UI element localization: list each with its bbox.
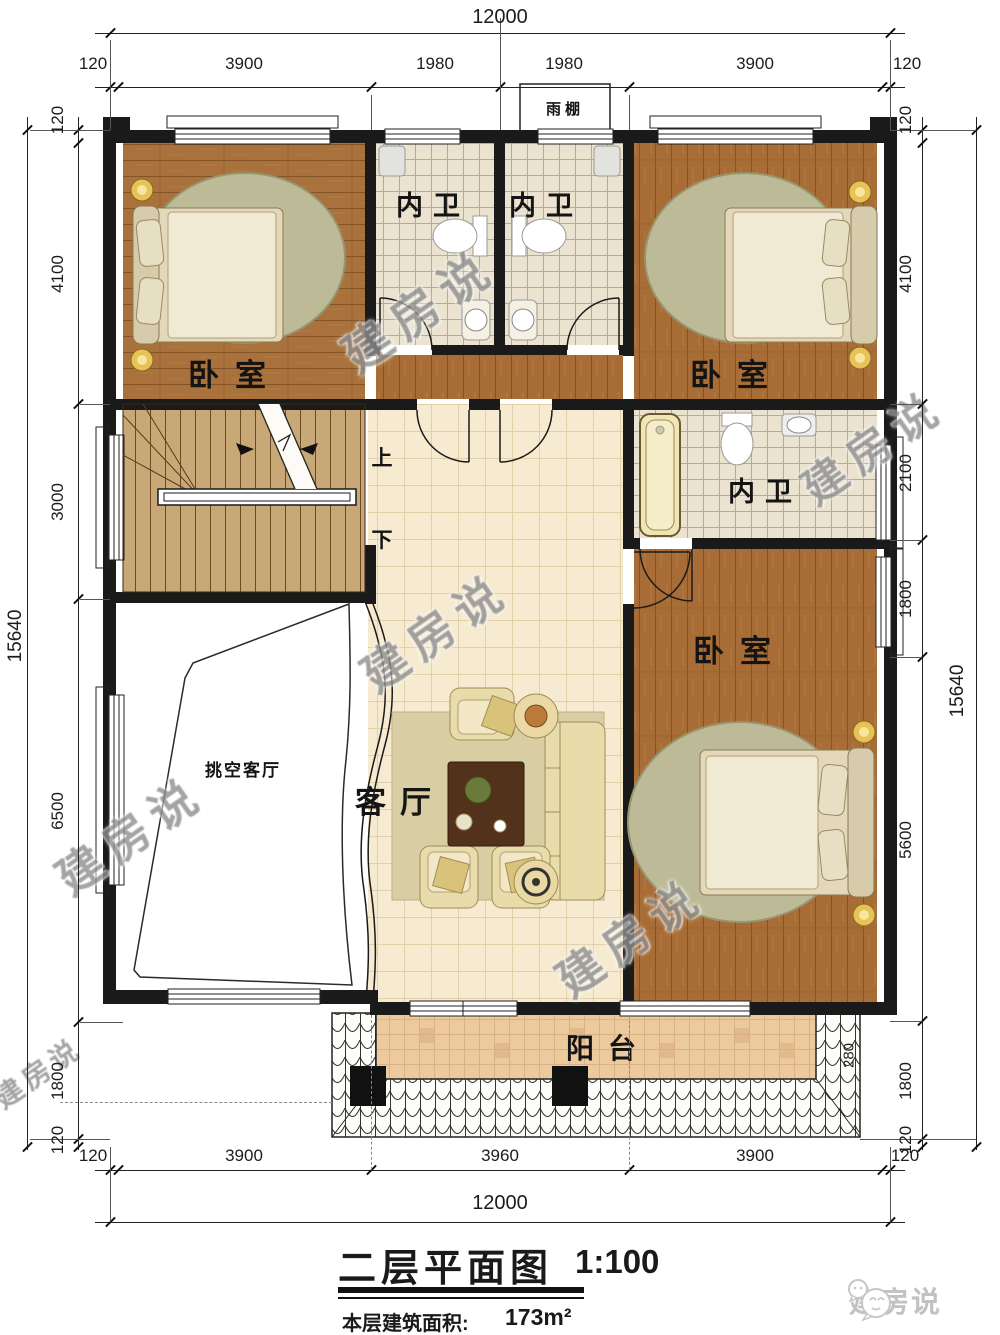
dim-right-0: 120 [896,90,916,150]
dim-line-left-chain [78,117,79,1150]
dim-line-right-chain [922,117,923,1150]
balcony-column [552,1066,588,1106]
dim-right-4: 5600 [896,810,916,870]
dim-line-left-total [27,117,28,1150]
dim-line-right-total [976,117,977,1150]
extension-line [860,1139,976,1140]
dim-right-1: 4100 [896,244,916,304]
dim-left-1: 4100 [48,244,68,304]
room-label-bedroom-right: 卧室 [675,626,805,671]
extension-line [500,18,501,130]
floor-area-value: 173m² [505,1304,571,1331]
dim-top-total: 12000 [465,6,535,29]
dim-bottom-3: 3900 [725,1146,785,1166]
dim-top-4: 3900 [725,54,785,74]
balcony-column [350,1066,386,1106]
extension-line [890,1021,922,1022]
drawing-title: 二层平面图 [338,1237,553,1292]
dim-right-3: 1800 [896,569,916,629]
dim-left-3: 6500 [48,781,68,841]
dim-right-2: 2100 [896,443,916,503]
extension-line [890,540,922,541]
dim-left-2: 3000 [48,472,68,532]
title-underline-thin [338,1297,584,1299]
stair-up-label: 上 [370,442,394,472]
room-label-living: 客厅 [340,777,460,822]
dim-left-5: 120 [48,1110,68,1170]
dim-bottom-1: 3900 [214,1146,274,1166]
extension-line [80,599,110,600]
dim-right-5: 1800 [896,1051,916,1111]
room-label-bath-top-left: 内卫 [378,184,488,223]
dim-left-total: 15640 [5,596,27,676]
room-label-bedroom-top-left: 卧室 [170,350,300,395]
dim-line-bottom-total [95,1222,905,1223]
floor-area-label: 本层建筑面积: [342,1307,469,1335]
dim-left-0: 120 [48,90,68,150]
extension-line [30,130,110,131]
extension-line-dashed [629,1015,630,1170]
dim-right-6: 120 [896,1110,916,1170]
dim-balcony-offset: 280 [841,1026,858,1086]
extension-line [371,95,372,130]
dim-bottom-0: 120 [78,1146,108,1166]
dim-right-total: 15640 [947,651,969,731]
dim-top-3: 1980 [534,54,594,74]
extension-line [629,95,630,130]
chat-face-icon [845,1274,897,1326]
extension-line [110,1147,111,1222]
dim-top-0: 120 [78,54,108,74]
extension-line [80,404,110,405]
extension-line [890,40,891,130]
extension-line [80,1022,123,1023]
extension-line [890,657,922,658]
extension-line [890,404,922,405]
room-label-bath-top-right: 内卫 [491,184,601,223]
extension-line [30,1139,110,1140]
dim-bottom-total: 12000 [465,1192,535,1215]
drawing-scale: 1:100 [575,1243,659,1281]
dim-bottom-2: 3960 [470,1146,530,1166]
floor-plan-page: 卧室 卧室 卧室 内卫 内卫 内卫 客厅 挑空客厅 阳台 雨棚 上 下 建房说 … [0,0,1000,1335]
room-label-canopy: 雨棚 [535,98,595,119]
dim-left-4: 1800 [48,1051,68,1111]
extension-line-dashed [371,1015,372,1170]
room-label-bedroom-top-right: 卧室 [672,350,802,395]
dim-top-1: 3900 [214,54,274,74]
stair-down-label: 下 [370,524,394,554]
room-label-void-living: 挑空客厅 [188,756,298,781]
dim-top-5: 120 [892,54,922,74]
projection-line [60,1102,332,1103]
title-underline-thick [338,1287,584,1293]
room-label-balcony: 阳台 [548,1027,668,1067]
extension-line [110,40,111,130]
dim-line-bottom-chain [95,1170,905,1171]
dim-top-2: 1980 [405,54,465,74]
brand-logo: 建房说 [845,1274,997,1326]
